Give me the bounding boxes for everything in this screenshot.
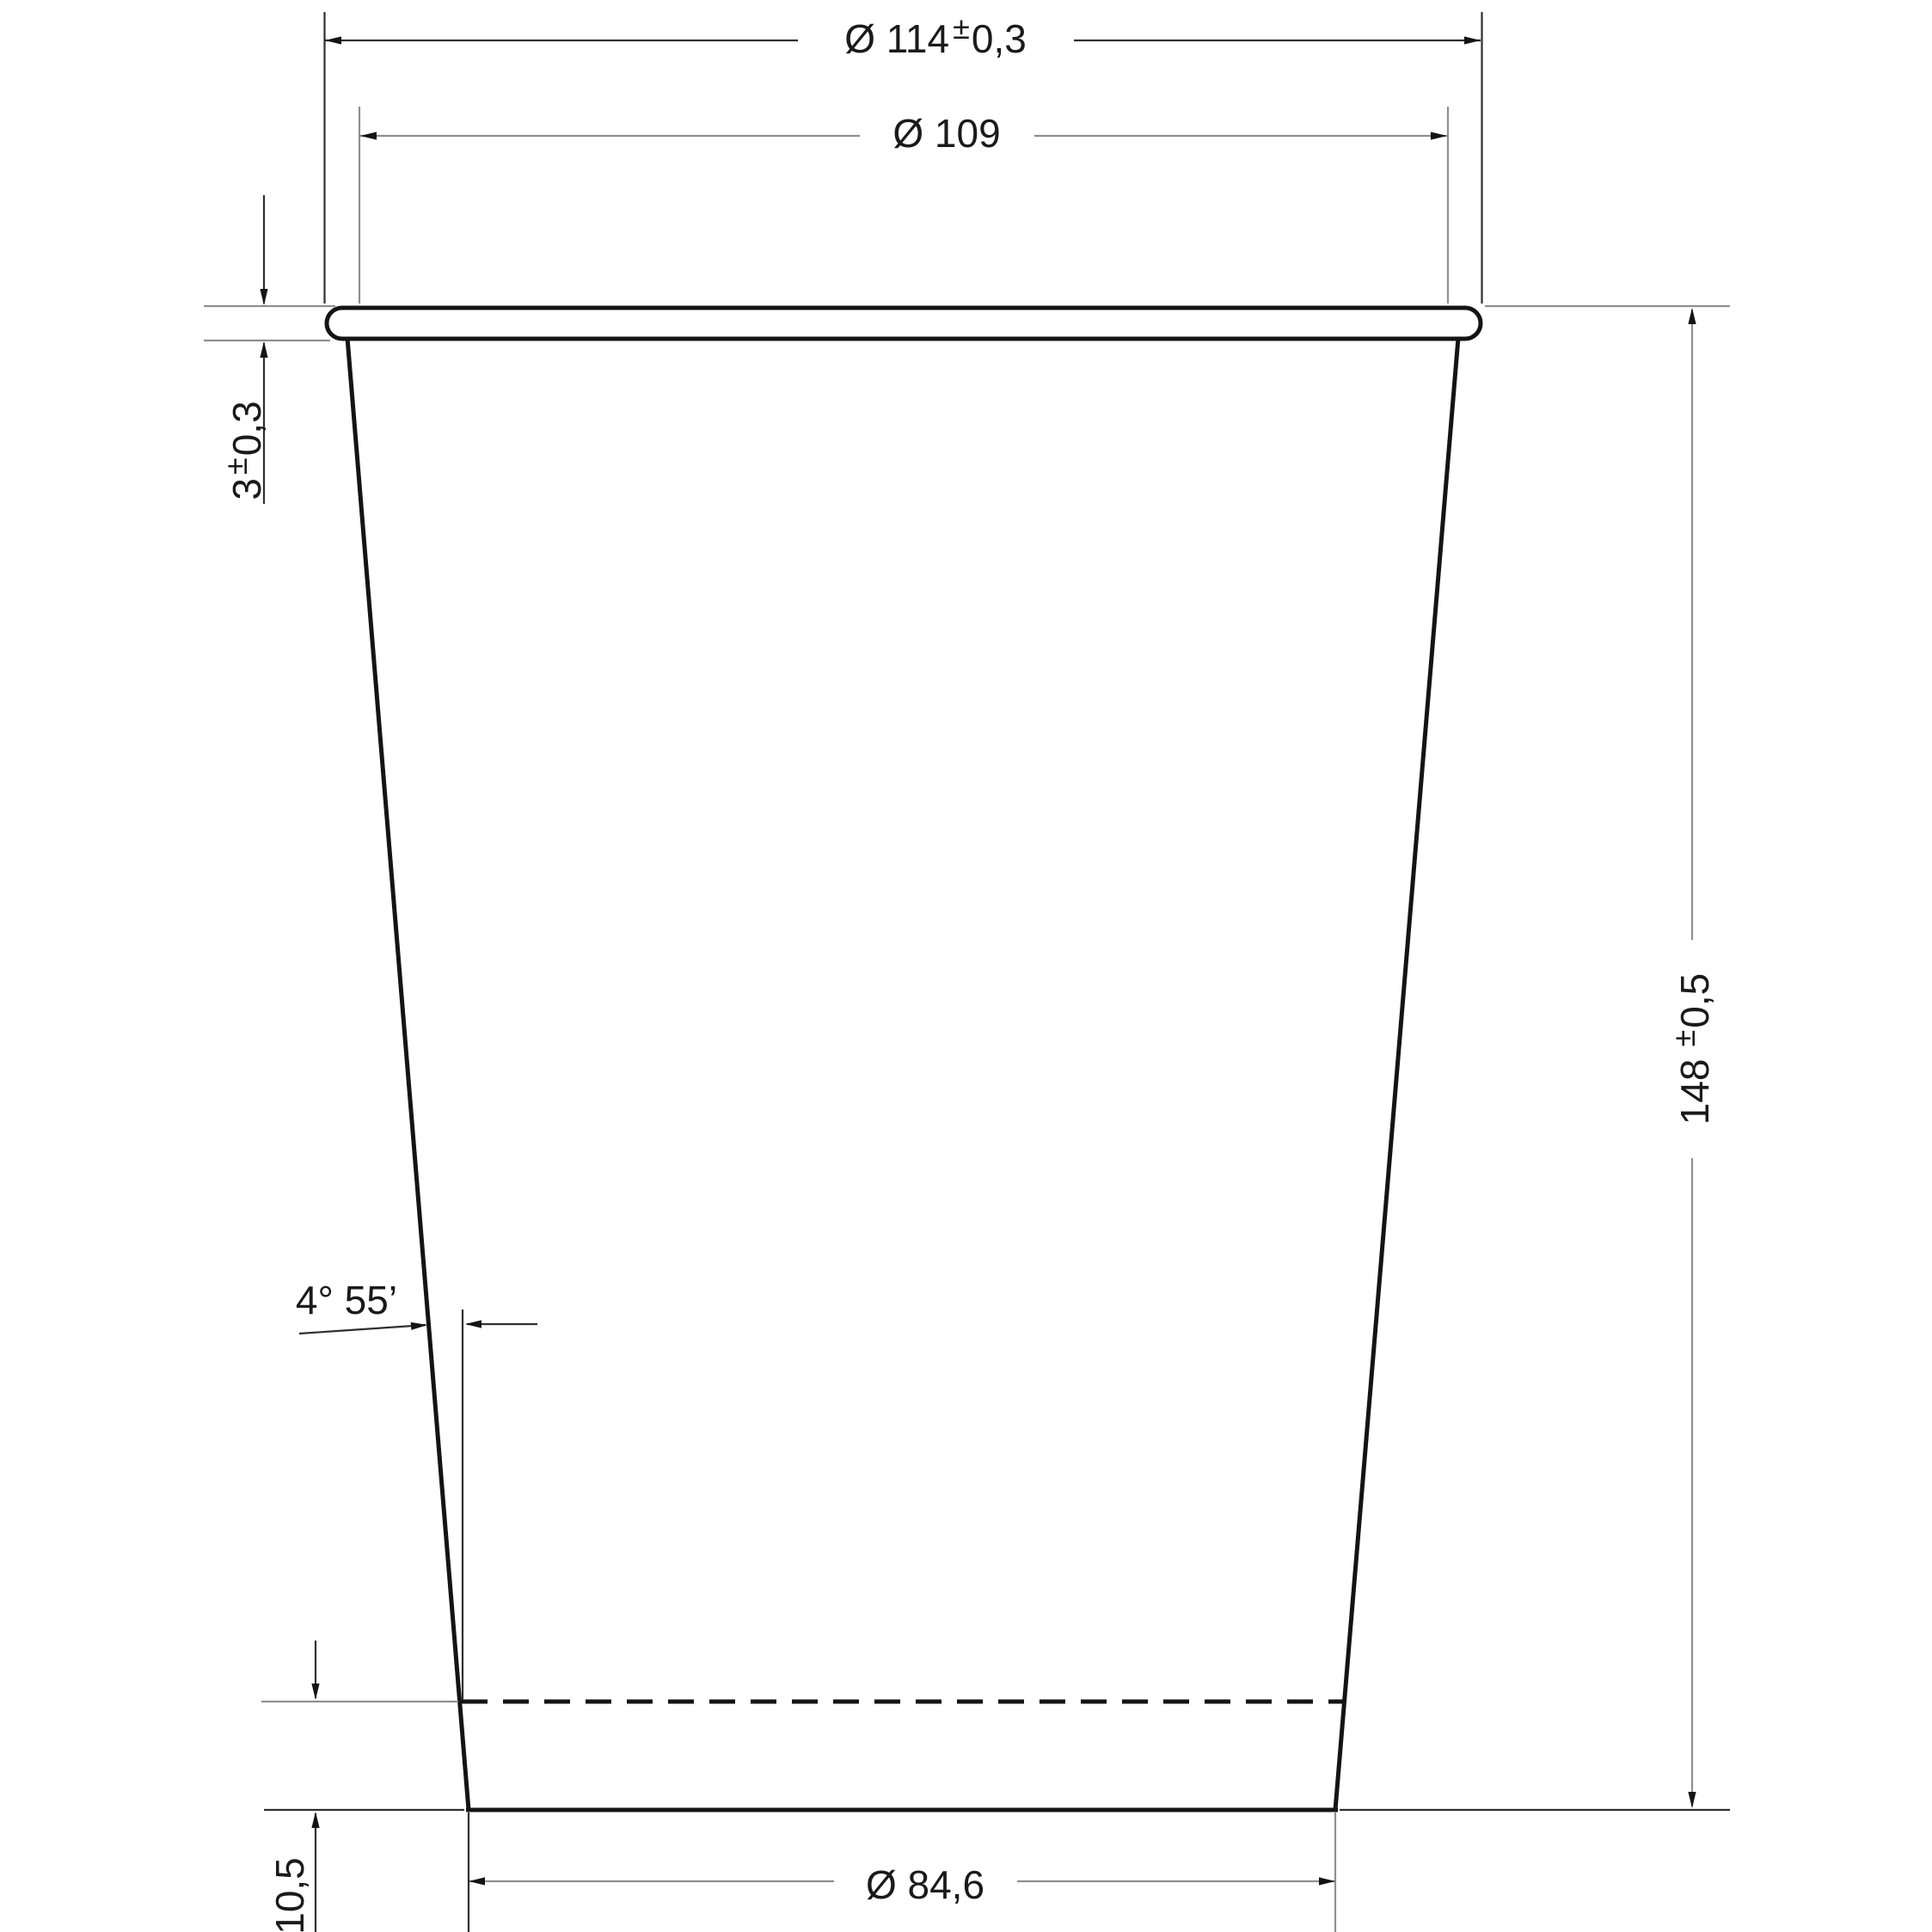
cup-right-wall bbox=[1335, 338, 1458, 1810]
label-top-inner-diameter: Ø 109 bbox=[892, 111, 1000, 156]
arrowhead-up bbox=[311, 1812, 319, 1828]
arrowhead-to-reference bbox=[465, 1320, 481, 1328]
dimension-rim-height: 3±0,3 bbox=[204, 195, 335, 504]
cup-outline bbox=[327, 308, 1481, 1810]
arrowhead-down bbox=[311, 1684, 319, 1700]
label-total-height: 148±0,5 bbox=[1666, 973, 1718, 1125]
annotation-taper-angle: 4° 55’ bbox=[296, 1278, 537, 1700]
cup-rim bbox=[327, 308, 1481, 339]
arrowhead-to-wall bbox=[411, 1321, 428, 1329]
arrowhead-down bbox=[260, 289, 267, 305]
dimension-top-outer-diameter: Ø 114±0,3 bbox=[325, 10, 1482, 304]
dimension-bottom-inset-height: 10,5 bbox=[261, 1641, 464, 1932]
label-taper-angle: 4° 55’ bbox=[296, 1278, 397, 1322]
arrowhead-left bbox=[469, 1877, 485, 1885]
arrowhead-right bbox=[1431, 132, 1447, 139]
label-bottom-inset-height: 10,5 bbox=[267, 1857, 312, 1932]
arrowhead-left bbox=[360, 132, 377, 139]
technical-drawing-canvas: Ø 114±0,3 Ø 109 3±0,3 148±0,5 bbox=[0, 0, 1932, 1932]
arrowhead-up bbox=[1688, 308, 1696, 324]
label-top-outer-diameter: Ø 114±0,3 bbox=[844, 10, 1027, 62]
dimension-bottom-diameter: Ø 84,6 bbox=[469, 1812, 1335, 1932]
arrowhead-up bbox=[260, 341, 267, 358]
dimension-top-inner-diameter: Ø 109 bbox=[359, 107, 1448, 304]
label-bottom-diameter: Ø 84,6 bbox=[866, 1862, 984, 1907]
cup-left-wall bbox=[347, 338, 469, 1810]
arrowhead-right bbox=[1319, 1877, 1335, 1885]
arrowhead-right bbox=[1464, 36, 1481, 44]
leader-line bbox=[299, 1325, 426, 1334]
label-rim-height: 3±0,3 bbox=[218, 401, 270, 500]
arrowhead-left bbox=[325, 36, 341, 44]
arrowhead-down bbox=[1688, 1792, 1696, 1808]
